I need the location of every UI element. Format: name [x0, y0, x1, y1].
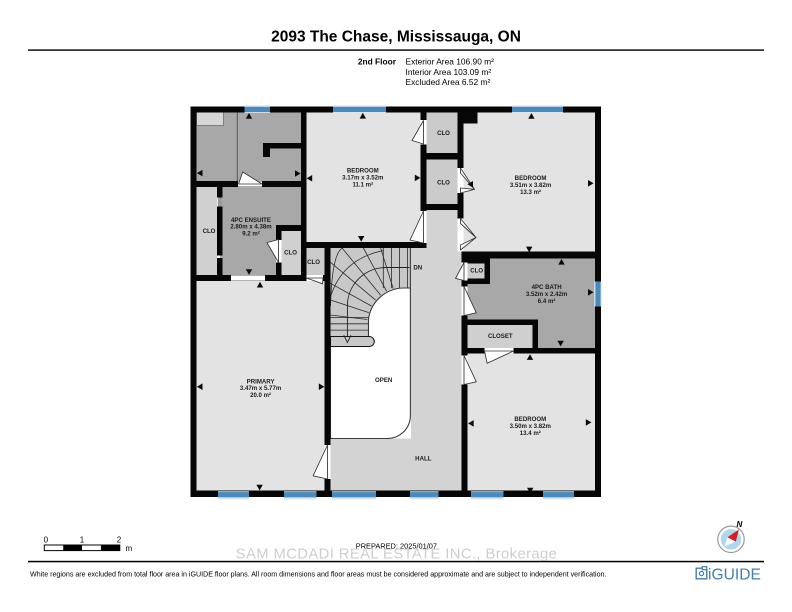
svg-text:9.2 m²: 9.2 m² [242, 230, 260, 237]
svg-text:CLOSET: CLOSET [488, 333, 513, 340]
svg-text:N: N [737, 520, 743, 529]
svg-text:m: m [126, 544, 133, 553]
svg-text:Interior Area 103.09 m²: Interior Area 103.09 m² [406, 67, 492, 77]
svg-text:11.1 m²: 11.1 m² [352, 181, 373, 188]
svg-text:Excluded Area 6.52 m²: Excluded Area 6.52 m² [406, 77, 491, 87]
svg-text:13.3 m²: 13.3 m² [520, 189, 541, 196]
svg-text:CLO: CLO [203, 228, 216, 235]
svg-text:CLO: CLO [437, 180, 450, 187]
svg-text:BEDROOM: BEDROOM [514, 416, 546, 423]
svg-text:1: 1 [80, 536, 85, 545]
svg-text:BEDROOM: BEDROOM [515, 175, 547, 182]
svg-text:White regions are excluded fro: White regions are excluded from total fl… [30, 570, 607, 578]
svg-text:CLO: CLO [470, 267, 483, 274]
svg-text:20.0 m²: 20.0 m² [250, 392, 271, 399]
svg-text:2: 2 [117, 536, 122, 545]
svg-text:Exterior Area 106.90 m²: Exterior Area 106.90 m² [406, 56, 495, 66]
svg-text:DN: DN [413, 265, 422, 272]
svg-text:HALL: HALL [415, 455, 432, 462]
svg-text:CLO: CLO [307, 259, 320, 266]
svg-text:13.4 m²: 13.4 m² [520, 430, 541, 437]
svg-text:BEDROOM: BEDROOM [347, 168, 379, 175]
svg-text:2nd Floor: 2nd Floor [358, 56, 397, 66]
svg-text:OPEN: OPEN [375, 377, 392, 384]
svg-text:6.4 m²: 6.4 m² [538, 298, 556, 305]
svg-text:0: 0 [44, 536, 49, 545]
svg-text:CLO: CLO [284, 250, 297, 257]
svg-text:iGUIDE: iGUIDE [708, 566, 761, 583]
svg-text:PREPARED: 2025/01/07: PREPARED: 2025/01/07 [356, 541, 437, 550]
svg-text:4PC BATH: 4PC BATH [532, 284, 562, 291]
svg-text:2093 The Chase, Mississauga, O: 2093 The Chase, Mississauga, ON [271, 29, 521, 46]
svg-text:CLO: CLO [437, 130, 450, 137]
